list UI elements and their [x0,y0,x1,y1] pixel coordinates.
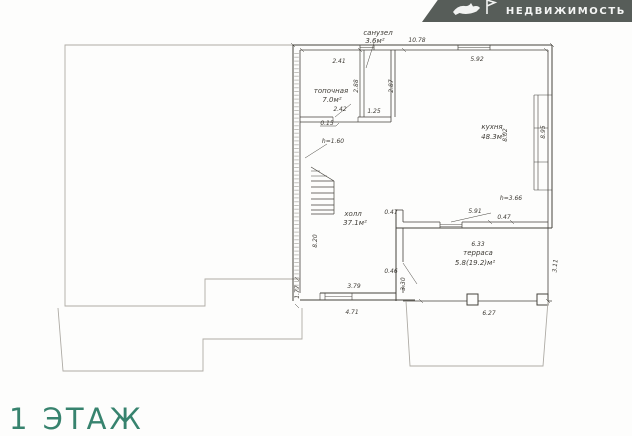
height-main: h=3.66 [500,195,522,202]
room-name-boiler: топочная [314,87,348,95]
dim-hall-bottom-inner: 3.79 [347,283,361,290]
room-name-kitchen: кухня [481,123,502,131]
dim-hall-nub: 0.47 [384,209,398,216]
plot-outline [58,45,302,371]
brand-animal-icon [453,3,480,15]
room-name-terrace: терраса [463,249,493,257]
dim-door-nub: 0.46 [384,268,398,275]
staircase [311,167,334,214]
dim-top-width: 10.78 [408,37,425,44]
dim-hall-bottom-outer: 4.71 [345,309,358,316]
room-name-hall: холл [343,210,362,218]
brand-name: НЕДВИЖИМОСТЬ [506,6,626,17]
brand-logo-icon [451,0,499,17]
leaders-and-ticks [291,43,554,308]
dim-kitchen-top: 5.92 [470,56,484,63]
dim-bath-width: 1.25 [367,108,381,115]
dim-terrace-bottom: 6.27 [482,310,496,317]
dim-boiler-top: 2.41 [332,58,345,65]
dim-kitchen-bottom: 5.91 [468,208,481,215]
room-name-sanuzel: санузел [363,29,393,37]
brand-banner: НЕДВИЖИМОСТЬ [422,0,632,22]
room-area-sanuzel: 3.6м² [365,37,384,45]
dim-terrace-right: 3.11 [551,259,559,273]
brand-flag-icon [487,0,495,14]
dim-boiler-width: 2.42 [333,106,347,113]
room-area-hall: 37.1м² [343,219,367,227]
dim-terrace-top: 6.33 [471,241,485,248]
height-under-stairs: h=1.60 [322,138,344,145]
dim-terrace-left: 3.30 [400,277,407,291]
dim-kitchen-nub: 0.47 [497,214,511,221]
floor-title: 1 ЭТАЖ [9,402,144,436]
room-area-boiler: 7.0м² [322,96,341,104]
dim-hall-left: 8.20 [312,234,319,248]
dim-wall-offset: 0.15 [320,120,334,127]
dim-bath-height: 2.87 [388,79,395,93]
floor-plan-drawing: санузел 3.6м² топочная 7.0м² кухня 48.3м… [0,0,632,425]
dim-right-inner: 8.02 [502,128,509,142]
terrace-post [467,294,478,305]
walls [293,45,552,301]
dim-boiler-height: 2.88 [353,79,360,93]
dim-plot-step: 1.77 [294,285,301,299]
dim-right-outer: 8.95 [540,125,547,139]
room-area-terrace: 5.8(19.2)м² [455,259,495,267]
